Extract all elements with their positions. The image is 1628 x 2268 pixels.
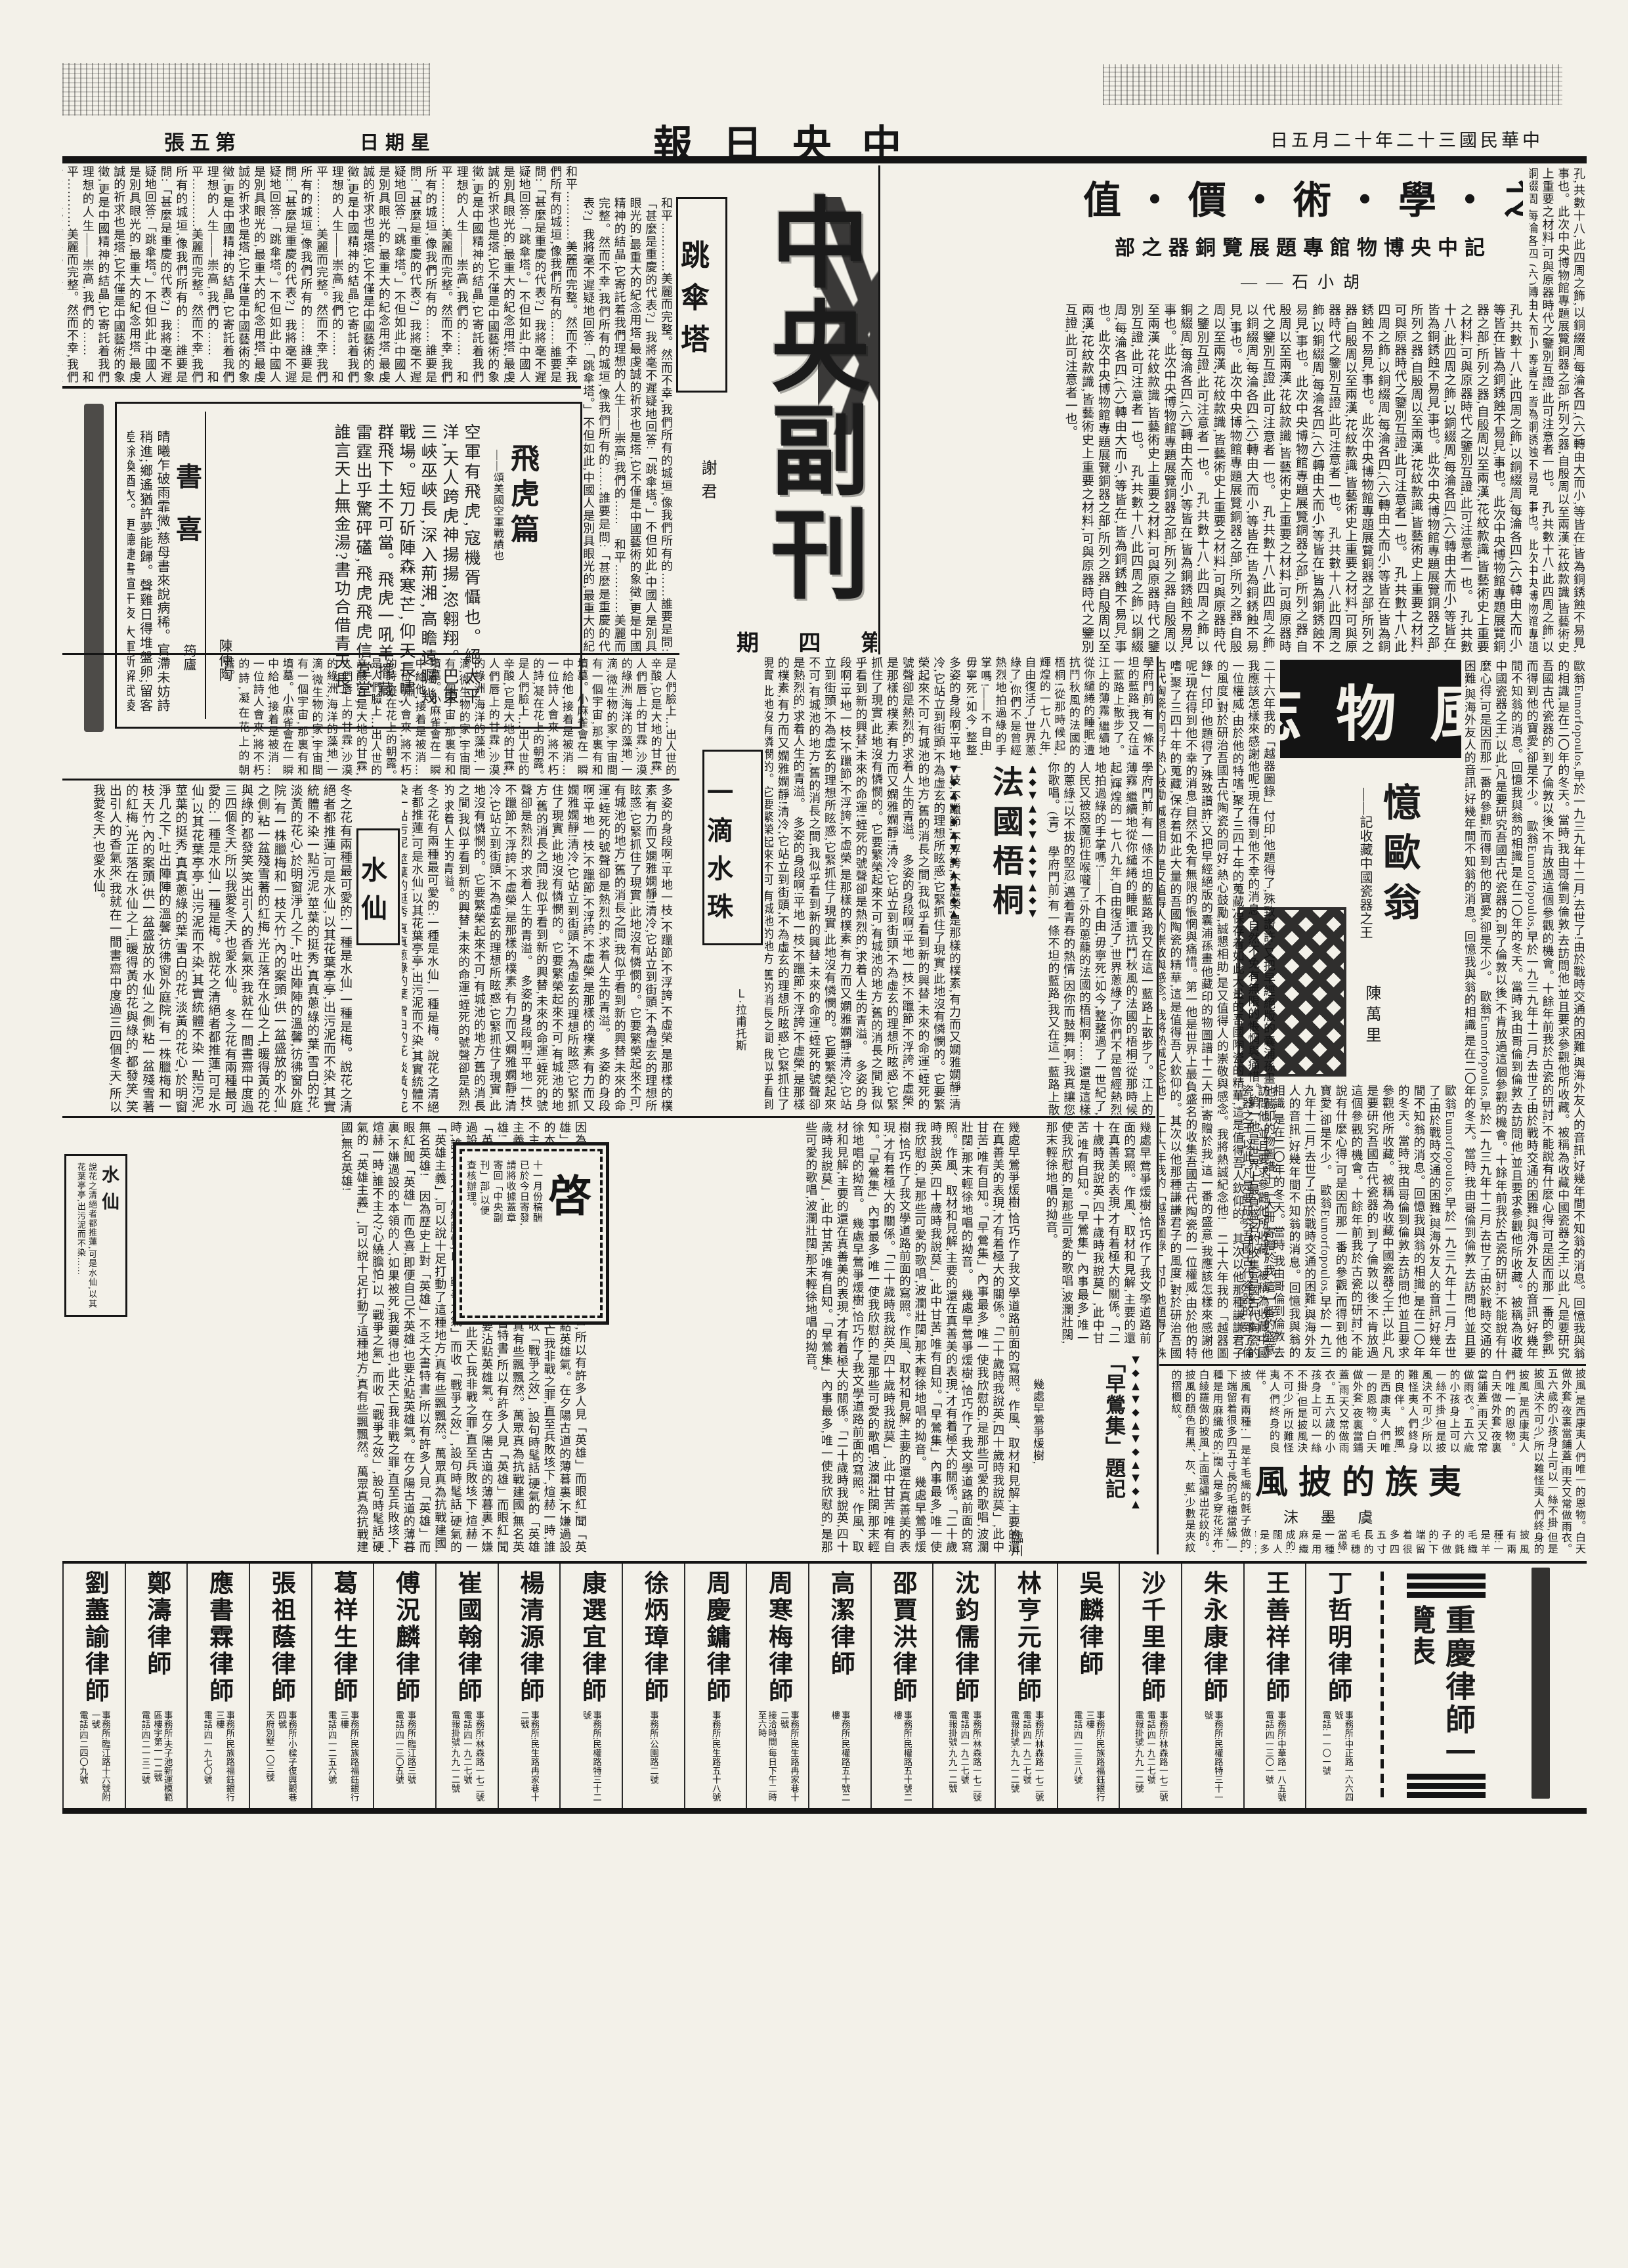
remember-ou-body-center: 歐翁Eumorfopoulos,早於一九三九年十二月,去世了!由於戰時交通的困難… <box>1241 1084 1457 1359</box>
lawyer-detail-line: 接洽時間:每日下午二時至六時 <box>756 1711 777 1808</box>
bronze-author: ——石小胡 <box>1241 269 1411 295</box>
flying-tiger-dedication: ——頌美國空軍戰績也 <box>487 450 504 614</box>
lawyer-detail-line: 電話:四二四〇九號 <box>77 1711 88 1808</box>
lawyer-details: 事務所:民權路特三十二號 <box>581 1707 601 1808</box>
lawyer-name: 楊清源律師 <box>511 1570 547 1707</box>
lawyer-row-wrap: 丁哲明律師事務所:中正路一六六四號電話:一一〇一號王善祥律師事務所:中華路一八五… <box>62 1564 1367 1808</box>
lawyer-detail-line: 事務所:民權路特三十二號 <box>581 1711 601 1808</box>
notice-line: 寄回「中央副 <box>492 1160 503 1307</box>
lawyer-details: 事務所:林森路一七二號電話:四一九二七號電報掛號:九九一二號 <box>1009 1707 1044 1808</box>
notice-line: 查核辦理。 <box>465 1160 477 1307</box>
lawyer-entry: 應書霖律師事務所:民族路福鈺銀行三樓電話:四一九七〇號 <box>186 1564 249 1808</box>
french-plane-title: 法國梧桐 <box>965 765 1025 954</box>
lawyer-entry: 王善祥律師事務所:中華路一八五號電話:四一三〇一號 <box>1243 1564 1306 1808</box>
lawyer-details: 事務所:民權路特三十一號 <box>1203 1707 1223 1808</box>
water-drop-body-left: 多姿的身段啊!平地一枝,不躐節,不浮誇,不虛榮,是那樣的樸素,有力而又嫻雅嫻靜!… <box>445 784 674 1112</box>
narcissus-small-box: 水仙 說花之清絕者都推蓮,可是水仙,以其花葉亭亭,出污泥而不染…… <box>64 1154 127 1317</box>
early-oriole-first-line: 幾處早鶯爭煖樹, <box>1026 1379 1044 1503</box>
french-plane-intro: 學府門前,有一條不坦的藍路,我又在這一藍路上散步了。江上的薄霧,繼續地從你繾綣的… <box>965 656 1154 756</box>
lawyer-entry: 張祖蔭律師事務所:小樑子復興觀巷四號天府別墅一〇三號 <box>249 1564 311 1808</box>
water-drop-title-box: 一滴水珠 <box>702 750 763 945</box>
lawyer-detail-line: 電話:四一九二七號 <box>959 1711 970 1808</box>
lawyer-detail-line: 電報掛號:九九一二號 <box>1133 1711 1144 1808</box>
lawyer-entry: 周寒梅律師事務所:民生路冉家巷十二號接洽時間:每日下午二時至六時 <box>746 1564 808 1808</box>
lawyer-entry: 吳麟律師事務所:民族路福鈺銀行三樓電話:四一三三八號 <box>1057 1564 1119 1808</box>
column-rule <box>1157 656 1159 1554</box>
remember-ou-title: 憶歐翁 <box>1379 782 1423 960</box>
lawyer-row: 丁哲明律師事務所:中正路一六六四號電話:一一〇一號王善祥律師事務所:中華路一八五… <box>62 1564 1367 1808</box>
lawyer-detail-line: 事務所:夫子池新運模範區樓宇第一一二號 <box>152 1711 173 1808</box>
early-oriole-title: 「早鶯集」題記 <box>1088 1352 1126 1549</box>
lawyer-entry: 沙千里律師事務所:林森路一七二號電話:四一九二七號電報掛號:九九一二號 <box>1119 1564 1181 1808</box>
lawyer-name: 高潔律師 <box>822 1570 857 1707</box>
lawyer-detail-line: 事務所:民權路特三十一號 <box>1203 1711 1223 1808</box>
lawyer-entry: 林亨元律師事務所:林森路一七二號電話:四一九二七號電報掛號:九九一二號 <box>995 1564 1057 1808</box>
water-drop-author: Ｌ·拉甫托斯 <box>719 988 747 1086</box>
arrow-ornament-right: ▼◆▲▼◆▲▼◆▲▼◆▲ <box>949 763 958 953</box>
bronze-subtitle: 部之器銅覽展題專館物博央中記 <box>1115 231 1535 264</box>
arrow-ornament-title: ▼◆▲▼◆▲▼◆▲▼◆▲ <box>1130 1354 1140 1544</box>
lawyer-details: 事務所:民族路福鈺銀行三樓電話:四一三三八號 <box>1072 1707 1105 1808</box>
triple-bar-bottom-ornament <box>1407 1770 1486 1801</box>
top-margin-smudge-left <box>62 63 430 116</box>
lawyer-name: 傅況麟律師 <box>387 1570 423 1707</box>
lawyer-name: 劉藎諭律師 <box>76 1570 112 1707</box>
lawyer-name: 朱永康律師 <box>1195 1570 1230 1707</box>
flying-tiger-title: 飛虎篇 <box>507 443 541 574</box>
section-rule <box>62 653 679 655</box>
heavy-edge-rule <box>1532 1568 1550 1799</box>
lawyer-detail-line: 事務所:民族路福鈺銀行三樓 <box>339 1711 359 1808</box>
narcissus-title: 水仙 <box>358 845 398 929</box>
water-drop-title: 一滴水珠 <box>704 767 761 928</box>
french-plane-body: 學府門前,有一條不坦的藍路,我又在這一藍路上散步了。江上的薄霧,繼續地從你繾綣的… <box>1045 761 1154 1116</box>
water-drop-body: 多姿的身段啊!平地一枝,不躐節,不浮誇,不虛榮,是那樣的樸素,有力而又嫻雅嫻靜!… <box>765 656 962 1111</box>
parachute-body: 和平…………美麗而完整。然而不幸,我們所有的城垣,像我們所有的……誰要是問:「甚… <box>583 197 674 653</box>
supplement-calligraphy: 中央副刊 <box>734 192 880 626</box>
bronze-body: 孔,共數十八,此四周之飾,以銅綴周,每淪各四,(六)轉由大而小,等皆在,皆為銅銹… <box>883 303 1523 653</box>
section-rule <box>62 779 679 781</box>
section-rule <box>1159 1364 1586 1366</box>
narcissus-body-2: 冬之花有兩種最可愛的:一種是水仙,一種是梅。說花之清絕者都推蓮,可是水仙,以其花… <box>402 784 440 1113</box>
lawyer-detail-line: 事務所:民生路五十八號 <box>710 1711 721 1808</box>
lawyer-details: 事務所:臨江路三號電話:四一三〇五號 <box>394 1707 416 1808</box>
lawyer-detail-line: 事務所:臨江路十六號附一號 <box>90 1711 110 1808</box>
lawyer-name: 沈鈞儒律師 <box>947 1570 982 1707</box>
lawyer-directory: 丁哲明律師事務所:中正路一六六四號電話:一一〇一號王善祥律師事務所:中華路一八五… <box>62 1561 1587 1814</box>
lawyer-name: 徐炳璋律師 <box>635 1570 671 1707</box>
lawyer-entry: 朱永康律師事務所:民權路特三十一號 <box>1181 1564 1243 1808</box>
notice-line: 刊」部,以便 <box>479 1160 490 1307</box>
lawyer-details: 事務所:中正路一六六四號電話:一一〇一號 <box>1321 1707 1354 1808</box>
early-oriole-body-top: 幾處早鶯爭煖樹,恰巧作了我文學道路前面的寫照。作風、取材和見解,主要的還在真善美… <box>1027 1121 1152 1344</box>
lawyer-details: 事務所:民權路五十號二樓 <box>830 1707 850 1808</box>
lawyer-detail-line: 事務所:民權路五十號二樓 <box>830 1711 850 1808</box>
lawyer-entry: 丁哲明律師事務所:中正路一六六四號電話:一一〇一號 <box>1305 1564 1367 1808</box>
lawyer-detail-line: 電話:四二一三二號 <box>140 1711 150 1808</box>
lawyer-name: 吳麟律師 <box>1071 1570 1106 1707</box>
lawyer-detail-line: 事務所:民族路福鈺銀行三樓 <box>1084 1711 1105 1808</box>
lawyer-details: 事務所:林森路一七二號電話:四一九二七號電報掛號:九九一二號 <box>1133 1707 1168 1808</box>
lawyer-entry: 徐炳璋律師事務所:公園路二號 <box>622 1564 684 1808</box>
lawyer-name: 周寒梅律師 <box>760 1570 796 1707</box>
ceramic-pattern-illustration <box>1237 907 1346 1077</box>
lawyer-details: 事務所:民族路福鈺銀行三樓電話:四一二五六號 <box>326 1707 359 1808</box>
lawyer-detail-line: 事務所:林森路一七二號 <box>1033 1711 1044 1808</box>
cloak-body-right: 披風,是西康夷人們唯一的恩物。白天做外套,夜裏當鋪蓋,雨天又常做雨衣。五六歲的小… <box>1533 1368 1586 1554</box>
book-joy-title: 書喜 <box>173 463 203 614</box>
lawyer-detail-line: 電報掛號:九九一二號 <box>947 1711 957 1808</box>
parachute-author: 謝君 <box>688 460 717 578</box>
lawyer-details: 事務所:民族路福鈺銀行三樓電話:四一九七〇號 <box>202 1707 235 1808</box>
parachute-title-box: 跳傘塔 <box>676 197 727 393</box>
cloak-body-top: 披風,是西康夷人們唯一的恩物。白天做外套,夜裏當鋪蓋,雨天又常做雨衣。五六歲的小… <box>1255 1369 1530 1453</box>
masthead-rule <box>62 156 1587 163</box>
cloak-headline: 風披的族夷 <box>1255 1456 1531 1499</box>
lawyer-entry: 崔國翰律師事務所:林森路一七二號電話:四一九二七號電報掛號:九九一二號 <box>435 1564 498 1808</box>
lawyer-name: 邵賈洪律師 <box>884 1570 920 1707</box>
lawyer-name: 王善祥律師 <box>1257 1570 1293 1707</box>
lawyer-entry: 邵賈洪律師事務所:民權路五十號二樓 <box>870 1564 933 1808</box>
lawyer-detail-line: 電報掛號:九九一二號 <box>450 1711 460 1808</box>
lawyer-detail-line: 電話:四一三〇一號 <box>1264 1711 1274 1808</box>
lawyer-details: 事務所:民權路五十號二樓 <box>891 1707 912 1808</box>
lawyer-entry: 鄭濤律師事務所:夫子池新運模範區樓宇第一一二號電話:四二一三二號 <box>125 1564 187 1808</box>
remember-ou-body-right: 歐翁Eumorfopoulos,早於一九三九年十二月,去世了!由於戰時交通的困難… <box>1465 660 1586 1359</box>
water-drop-intro: 是人們臉上…出人世的辛酸,它是大地的甘霖,人們唇上的甘霖,沙漠的綠洲,海洋的藻地… <box>62 658 677 776</box>
parachute-body-continued: 和平…………美麗而完整。然而不幸,我們所有的城垣,像我們所有的……誰要是問:「甚… <box>62 165 578 383</box>
section-rule <box>62 1116 1155 1118</box>
notice-title: 啓 <box>548 1161 591 1224</box>
lawyer-detail-line: 事務所:林森路一七二號 <box>1157 1711 1168 1808</box>
lawyer-detail-line: 電話:四一九二七號 <box>462 1711 473 1808</box>
lawyer-name: 康選宜律師 <box>574 1570 609 1707</box>
lawyer-detail-line: 電話:四一二五六號 <box>326 1711 337 1808</box>
lawyer-name: 鄭濤律師 <box>139 1570 174 1707</box>
notice-line: 請將收據蓋章 <box>505 1160 516 1307</box>
arrow-ornament-left: ▲◆▼▲◆▼▲◆▼▲◆▼ <box>1027 763 1037 953</box>
lawyer-name: 張祖蔭律師 <box>263 1570 298 1707</box>
notice-line: 十一月份稿酬 <box>532 1160 543 1307</box>
lawyer-entry: 周慶鏞律師事務所:民生路五十八號 <box>684 1564 746 1808</box>
lawyer-details: 事務所:民生路冉家巷十二號接洽時間:每日下午二時至六時 <box>756 1707 799 1808</box>
lawyer-details: 事務所:中華路一八五號電話:四一三〇一號 <box>1264 1707 1286 1808</box>
lawyer-detail-line: 事務所:臨江路三號 <box>406 1711 416 1808</box>
lawyer-detail-line: 事務所:民權路五十號二樓 <box>891 1711 912 1808</box>
lawyer-entry: 康選宜律師事務所:民權路特三十二號 <box>559 1564 622 1808</box>
lawyer-detail-line: 電話:一一〇一號 <box>1321 1711 1331 1808</box>
lawyer-entry: 沈鈞儒律師事務所:林森路一七二號電話:四一九二七號電報掛號:九九一二號 <box>932 1564 995 1808</box>
lawyer-detail-line: 電話:四一九七〇號 <box>202 1711 213 1808</box>
lawyer-name: 林亨元律師 <box>1008 1570 1044 1707</box>
lawyer-name: 葛祥生律師 <box>325 1570 360 1707</box>
lawyer-details: 事務所:夫子池新運模範區樓宇第一一二號電話:四二一三二號 <box>140 1707 173 1808</box>
parachute-title: 跳傘塔 <box>678 228 725 362</box>
lawyer-name: 應書霖律師 <box>201 1570 236 1707</box>
narcissus-body: 冬之花有兩種最可愛的:一種是水仙,一種是梅。說花之清絕者都推蓮,可是水仙,以其花… <box>92 784 353 1113</box>
notice-box: 啓 十一月份稿酬已於今日寄發,請將收據蓋章寄回「中央副刊」部,以便查核辦理。 <box>453 1142 609 1325</box>
directory-title: 重慶律師一覽表 <box>1415 1604 1478 1768</box>
lawyer-details: 事務所:林森路一七二號電話:四一九二七號電報掛號:九九一二號 <box>947 1707 981 1808</box>
lawyer-name: 崔國翰律師 <box>449 1570 484 1707</box>
triple-bar-top-ornament <box>1407 1570 1486 1601</box>
lawyer-detail-line: 電報掛號:九九一二號 <box>1009 1711 1019 1808</box>
top-margin-smudge-right <box>1103 64 1562 105</box>
lawyer-entry: 傅況麟律師事務所:臨江路三號電話:四一三〇五號 <box>373 1564 435 1808</box>
edition-label: 張五第 <box>164 126 263 160</box>
bronze-headline: 值・價・術・學・之・器・銅 <box>1083 169 1523 227</box>
lawyer-details: 事務所:小樑子復興觀巷四號天府別墅一〇三號 <box>264 1707 297 1808</box>
lawyer-detail-line: 事務所:小樑子復興觀巷四號 <box>276 1711 297 1808</box>
cloak-author: 沫 墨 虞 <box>1283 1505 1428 1526</box>
notice-line: 已於今日寄發, <box>519 1160 530 1307</box>
lawyer-entry: 高潔律師事務所:民權路五十號二樓 <box>808 1564 870 1808</box>
lawyer-detail-line: 電話:四一九二七號 <box>1146 1711 1156 1808</box>
lawyer-detail-line: 事務所:民族路福鈺銀行三樓 <box>214 1711 234 1808</box>
lawyer-details: 事務所:臨江路十六號附一號電話:四二四〇九號 <box>77 1707 110 1808</box>
narcissus-title-box: 水仙 <box>356 828 400 945</box>
weekday-label: 日期星 <box>360 127 465 160</box>
lawyer-details: 事務所:公園路二號 <box>649 1707 659 1808</box>
cloak-body-bottom: 披風有兩種:一是羊毛織的氈子做的,下端留着很多四五寸長的毛穗當緣,一種是用麻織成… <box>1255 1530 1530 1554</box>
date-line: 日五月二十年二十三國民華中 <box>1270 126 1587 155</box>
lawyer-detail-line: 事務所:中正路一六六四號 <box>1333 1711 1353 1808</box>
fengwuzhi-banner: 志 物 風 <box>1280 660 1461 758</box>
lawyer-entry: 劉藎諭律師事務所:臨江路十六號附一號電話:四二四〇九號 <box>62 1564 125 1808</box>
lawyer-name: 周慶鏞律師 <box>698 1570 733 1707</box>
lawyer-detail-line: 事務所:林森路一七二號 <box>971 1711 981 1808</box>
lawyer-entry: 葛祥生律師事務所:民族路福鈺銀行三樓電話:四一二五六號 <box>311 1564 374 1808</box>
lawyer-details: 事務所:民生路冉家巷十二號 <box>519 1707 539 1808</box>
lawyer-detail-line: 電話:四一九二七號 <box>1021 1711 1032 1808</box>
cloak-body-left: 披風有兩種:一是羊毛織的氈子做的,下端留着很多四五寸長的毛穗當緣,一種是用麻織成… <box>1159 1369 1251 1553</box>
lawyer-details: 事務所:林森路一七二號電話:四一九二七號電報掛號:九九一二號 <box>450 1707 484 1808</box>
lawyer-detail-line: 電話:四一三三八號 <box>1072 1711 1082 1808</box>
lawyer-name: 丁哲明律師 <box>1319 1570 1355 1707</box>
directory-title-cell: 重慶律師一覽表 <box>1369 1564 1585 1808</box>
bronze-body-right-strip: 孔,共數十八,此四周之飾,以銅綴周,每淪各四,(六)轉由大而小,等皆在,皆為銅銹… <box>1530 167 1586 653</box>
notice-lines: 十一月份稿酬已於今日寄發,請將收據蓋章寄回「中央副刊」部,以便查核辦理。 <box>465 1160 543 1307</box>
wavy-rule-left <box>1381 1569 1384 1797</box>
lawyer-detail-line: 事務所:公園路二號 <box>649 1711 659 1808</box>
narcissus-small-body: 說花之清絕者都推蓮,可是水仙,以其花葉亭亭,出污泥而不染…… <box>70 1163 98 1308</box>
supplement-issue: 期 四 第 <box>737 625 877 655</box>
section-rule <box>62 386 581 389</box>
fengwuzhi-title: 志 物 風 <box>1242 666 1499 753</box>
lawyer-detail-line: 事務所:民生路冉家巷十二號 <box>779 1711 799 1808</box>
lawyer-entry: 楊清源律師事務所:民生路冉家巷十二號 <box>498 1564 560 1808</box>
lawyer-detail-line: 事務所:民生路冉家巷十二號 <box>519 1711 539 1808</box>
remember-ou-author: 陳萬里 <box>1354 985 1381 1070</box>
narcissus-small-title: 水仙 <box>98 1165 120 1237</box>
newspaper-page: 張五第 日期星 報日央中 日五月二十年二十三國民華中 孔,共數十八,此四周之飾,… <box>0 0 1628 2268</box>
lawyer-detail-line: 天府別墅一〇三號 <box>264 1711 274 1808</box>
lawyer-detail-line: 電話:四一三〇五號 <box>394 1711 404 1808</box>
early-oriole-body: 幾處早鶯爭煖樹,恰巧作了我文學道路前面的寫照。作風、取材和見解,主要的還在真善美… <box>591 1121 1021 1553</box>
lawyer-name: 沙千里律師 <box>1133 1570 1168 1707</box>
lawyer-detail-line: 事務所:林森路一七二號 <box>474 1711 484 1808</box>
lawyer-details: 事務所:民生路五十八號 <box>710 1707 721 1808</box>
remember-ou-subtitle: ——記收藏中國瓷器之王 <box>1351 788 1373 972</box>
lawyer-detail-line: 事務所:中華路一八五號 <box>1275 1711 1286 1808</box>
